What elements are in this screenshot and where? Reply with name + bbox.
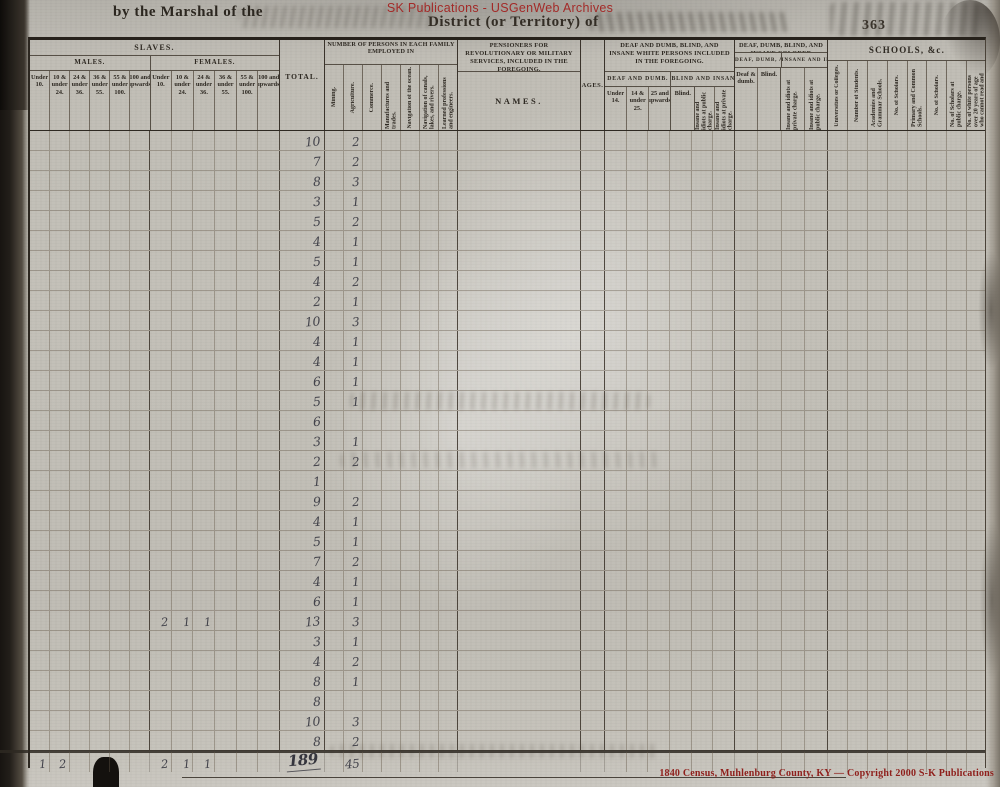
cell — [647, 391, 669, 410]
handwritten-value: 1 — [351, 335, 359, 350]
cell — [171, 551, 193, 570]
cell — [946, 271, 966, 290]
cell — [236, 571, 258, 590]
cell — [647, 531, 669, 550]
cell — [438, 171, 457, 190]
cell — [966, 471, 986, 490]
cell — [626, 491, 648, 510]
cell — [419, 231, 438, 250]
cell — [89, 211, 109, 230]
row-group: 211 — [150, 611, 280, 630]
cell — [257, 251, 279, 270]
cell — [129, 311, 149, 330]
row-group — [458, 151, 581, 170]
cell — [214, 151, 236, 170]
cell — [192, 311, 214, 330]
cell — [109, 371, 129, 390]
cell — [400, 691, 419, 710]
column-header: Under 10. — [30, 71, 49, 130]
cell — [89, 331, 109, 350]
cell — [49, 671, 69, 690]
cell — [847, 471, 867, 490]
cell — [49, 531, 69, 550]
cell — [847, 291, 867, 310]
cell — [89, 371, 109, 390]
row-group — [458, 471, 581, 490]
row-group — [150, 171, 280, 190]
cell — [867, 591, 887, 610]
cell — [907, 491, 927, 510]
cell — [236, 251, 258, 270]
cell — [669, 431, 691, 450]
cell — [867, 171, 887, 190]
row-group — [605, 531, 735, 550]
cell — [647, 631, 669, 650]
names-column-header: NAMES. — [458, 72, 580, 130]
cell — [325, 251, 343, 270]
cell — [325, 471, 343, 490]
table-row: 8 — [30, 691, 985, 711]
cell: 3 — [343, 611, 362, 630]
row-group — [150, 671, 280, 690]
cell — [605, 691, 626, 710]
row-group — [458, 191, 581, 210]
row-group — [581, 731, 605, 750]
cell — [966, 551, 986, 570]
cell — [129, 211, 149, 230]
cell — [581, 571, 604, 590]
cell — [907, 411, 927, 430]
cell — [69, 531, 89, 550]
cell — [438, 311, 457, 330]
row-group — [458, 631, 581, 650]
cell — [192, 251, 214, 270]
cell — [150, 331, 171, 350]
row-group — [581, 631, 605, 650]
cell — [804, 351, 827, 370]
cell — [691, 551, 713, 570]
cell — [647, 711, 669, 730]
cell — [150, 671, 171, 690]
row-group: 1 — [325, 571, 458, 590]
cell — [757, 511, 780, 530]
cell — [907, 571, 927, 590]
cell — [89, 251, 109, 270]
cell — [171, 411, 193, 430]
cell — [30, 531, 49, 550]
row-group: 2 — [325, 151, 458, 170]
row-group — [150, 571, 280, 590]
cell — [458, 231, 580, 250]
cell — [804, 651, 827, 670]
cell — [109, 291, 129, 310]
cell: 1 — [343, 571, 362, 590]
cell — [438, 411, 457, 430]
colored-impaired-title: DEAF, DUMB, BLIND, AND INSANE COLORED PE… — [735, 40, 827, 53]
row-group — [458, 371, 581, 390]
cell — [89, 411, 109, 430]
cell — [171, 291, 193, 310]
cell — [626, 431, 648, 450]
cell — [30, 291, 49, 310]
cell — [381, 351, 400, 370]
cell — [381, 391, 400, 410]
cell — [129, 331, 149, 350]
cell — [171, 491, 193, 510]
cell — [735, 291, 757, 310]
row-group — [735, 231, 828, 250]
row-group — [581, 231, 605, 250]
cell — [626, 271, 648, 290]
cell: 2 — [150, 752, 171, 772]
handwritten-value: 3 — [312, 634, 321, 650]
cell — [49, 271, 69, 290]
cell — [626, 171, 648, 190]
cell — [691, 591, 713, 610]
cell — [458, 251, 580, 270]
table-row: 42 — [30, 651, 985, 671]
row-group — [581, 151, 605, 170]
cell — [966, 391, 986, 410]
cell — [438, 331, 457, 350]
cell — [828, 691, 847, 710]
cell — [804, 271, 827, 290]
cell — [458, 151, 580, 170]
cell — [626, 631, 648, 650]
cell — [129, 711, 149, 730]
cell — [192, 571, 214, 590]
cell — [362, 131, 381, 150]
cell — [946, 231, 966, 250]
cell: 7 — [280, 551, 324, 570]
cell — [669, 531, 691, 550]
cell — [236, 591, 258, 610]
cell — [804, 611, 827, 630]
cell — [966, 651, 986, 670]
cell — [966, 331, 986, 350]
cell — [887, 431, 907, 450]
cell — [887, 371, 907, 390]
cell — [966, 691, 986, 710]
cell — [236, 431, 258, 450]
cell — [419, 371, 438, 390]
handwritten-value: 10 — [304, 713, 320, 729]
cell — [735, 651, 757, 670]
cell: 2 — [343, 651, 362, 670]
cell — [581, 752, 604, 772]
row-group — [150, 291, 280, 310]
row-group — [735, 391, 828, 410]
table-row: 61 — [30, 371, 985, 391]
cell — [400, 211, 419, 230]
cell — [69, 752, 89, 772]
row-group: 7 — [280, 551, 325, 570]
cell — [887, 211, 907, 230]
row-group: 2 — [325, 271, 458, 290]
row-group — [828, 471, 986, 490]
cell — [236, 371, 258, 390]
cell — [257, 191, 279, 210]
cell — [691, 291, 713, 310]
cell — [605, 211, 626, 230]
cell — [926, 691, 946, 710]
cell — [581, 631, 604, 650]
cell — [712, 551, 734, 570]
cell — [362, 451, 381, 470]
column-header: No. of Scholars. — [887, 61, 907, 130]
row-group — [828, 511, 986, 530]
column-header: Number of Students. — [847, 61, 867, 130]
row-group: 12 — [30, 752, 150, 772]
cell — [381, 271, 400, 290]
row-group — [30, 491, 150, 510]
column-header: Deaf & dumb. — [735, 68, 757, 130]
slaves-section: SLAVES. MALES. FEMALES. Under 10.10 & un… — [30, 40, 280, 130]
row-group — [30, 591, 150, 610]
cell — [69, 231, 89, 250]
row-group — [605, 691, 735, 710]
row-group: 1 — [325, 331, 458, 350]
handwritten-value: 1 — [351, 195, 359, 210]
cell — [325, 151, 343, 170]
cell — [30, 691, 49, 710]
cell — [89, 711, 109, 730]
cell — [946, 531, 966, 550]
cell — [236, 511, 258, 530]
cell — [150, 371, 171, 390]
cell — [30, 331, 49, 350]
cell — [381, 371, 400, 390]
row-group — [30, 551, 150, 570]
row-group — [828, 711, 986, 730]
cell — [419, 431, 438, 450]
cell — [847, 211, 867, 230]
cell — [867, 371, 887, 390]
cell — [192, 131, 214, 150]
pensioners-title: PENSIONERS FOR REVOLUTIONARY OR MILITARY… — [458, 40, 580, 72]
row-group — [150, 631, 280, 650]
cell — [926, 131, 946, 150]
cell — [626, 511, 648, 530]
cell — [581, 591, 604, 610]
cell — [89, 351, 109, 370]
cell — [804, 491, 827, 510]
cell — [381, 151, 400, 170]
handwritten-value: 5 — [312, 214, 321, 230]
cell — [647, 351, 669, 370]
cell — [887, 311, 907, 330]
cell — [847, 411, 867, 430]
cell — [757, 171, 780, 190]
cell — [214, 671, 236, 690]
cell — [781, 251, 804, 270]
row-group — [30, 251, 150, 270]
cell: 2 — [343, 551, 362, 570]
row-group: 9 — [280, 491, 325, 510]
row-group: 189 — [280, 752, 325, 772]
cell — [400, 651, 419, 670]
cell — [30, 271, 49, 290]
cell — [49, 431, 69, 450]
cell — [691, 451, 713, 470]
cell — [946, 651, 966, 670]
cell — [781, 151, 804, 170]
cell: 2 — [343, 131, 362, 150]
cell — [129, 611, 149, 630]
cell — [89, 551, 109, 570]
cell — [867, 631, 887, 650]
cell: 3 — [280, 431, 324, 450]
cell — [325, 271, 343, 290]
cell — [712, 251, 734, 270]
handwritten-value: 8 — [312, 674, 321, 690]
cell — [325, 752, 343, 772]
row-group — [828, 251, 986, 270]
cell — [69, 351, 89, 370]
cell — [129, 571, 149, 590]
cell — [214, 351, 236, 370]
cell — [192, 631, 214, 650]
cell — [129, 431, 149, 450]
cell — [192, 491, 214, 510]
cell — [438, 471, 457, 490]
cell — [49, 211, 69, 230]
column-header: Under 10. — [151, 71, 172, 130]
cell — [712, 471, 734, 490]
cell — [757, 431, 780, 450]
cell — [49, 171, 69, 190]
cell — [907, 271, 927, 290]
cell — [150, 691, 171, 710]
cell — [257, 271, 279, 290]
cell — [735, 611, 757, 630]
cell — [30, 571, 49, 590]
row-group: 2 — [325, 211, 458, 230]
row-group — [581, 511, 605, 530]
row-group — [735, 251, 828, 270]
cell — [458, 371, 580, 390]
cell — [804, 251, 827, 270]
cell — [626, 311, 648, 330]
cell — [605, 371, 626, 390]
cell — [946, 471, 966, 490]
cell — [458, 171, 580, 190]
cell — [419, 651, 438, 670]
cell — [605, 271, 626, 290]
row-group — [150, 411, 280, 430]
cell — [867, 531, 887, 550]
cell — [236, 391, 258, 410]
cell — [419, 491, 438, 510]
cell — [926, 391, 946, 410]
row-group — [735, 611, 828, 630]
cell — [691, 311, 713, 330]
cell — [458, 571, 580, 590]
cell — [109, 251, 129, 270]
cell — [129, 671, 149, 690]
cell — [438, 131, 457, 150]
cell: 3 — [343, 711, 362, 730]
cell — [109, 351, 129, 370]
cell — [109, 171, 129, 190]
cell — [214, 231, 236, 250]
cell — [647, 511, 669, 530]
cell — [214, 311, 236, 330]
cell — [257, 411, 279, 430]
cell — [926, 351, 946, 370]
cell — [828, 591, 847, 610]
cell — [605, 752, 626, 772]
cell — [926, 571, 946, 590]
handwritten-value: 2 — [351, 555, 359, 570]
cell — [867, 251, 887, 270]
cell — [946, 731, 966, 750]
cell — [30, 471, 49, 490]
column-header: Manufactures and trades. — [381, 65, 400, 130]
cell — [419, 171, 438, 190]
cell — [257, 171, 279, 190]
book-gutter-shadow — [0, 0, 30, 787]
cell — [669, 651, 691, 670]
row-group — [581, 251, 605, 270]
cell — [712, 211, 734, 230]
cell — [867, 271, 887, 290]
cell — [214, 551, 236, 570]
handwritten-value: 2 — [351, 455, 359, 470]
form-header-center: District (or Territory) of — [428, 14, 599, 31]
ages-section: AGES. — [581, 40, 605, 130]
cell: 10 — [280, 311, 324, 330]
row-group — [581, 391, 605, 410]
cell — [847, 451, 867, 470]
column-header: No. of Scholars at public charge. — [946, 61, 966, 130]
cell — [605, 151, 626, 170]
cell — [89, 571, 109, 590]
cell — [669, 211, 691, 230]
cell — [150, 631, 171, 650]
row-group — [581, 591, 605, 610]
cell — [419, 591, 438, 610]
cell — [419, 451, 438, 470]
cell — [867, 611, 887, 630]
cell — [757, 691, 780, 710]
cell — [109, 631, 129, 650]
table-body: 1027283315241514221103414161516312219241… — [30, 131, 985, 771]
cell — [49, 611, 69, 630]
cell — [669, 271, 691, 290]
row-group — [735, 511, 828, 530]
row-group — [605, 571, 735, 590]
cell — [691, 231, 713, 250]
cell — [581, 451, 604, 470]
cell — [362, 311, 381, 330]
cell — [458, 271, 580, 290]
cell — [30, 511, 49, 530]
cell — [847, 711, 867, 730]
row-group — [150, 471, 280, 490]
row-group — [581, 471, 605, 490]
cell — [69, 691, 89, 710]
cell — [626, 531, 648, 550]
handwritten-value: 2 — [351, 495, 359, 510]
cell — [605, 431, 626, 450]
cell — [69, 271, 89, 290]
handwritten-value: 1 — [351, 235, 359, 250]
cell — [236, 291, 258, 310]
cell — [647, 191, 669, 210]
row-group — [581, 211, 605, 230]
cell — [325, 431, 343, 450]
